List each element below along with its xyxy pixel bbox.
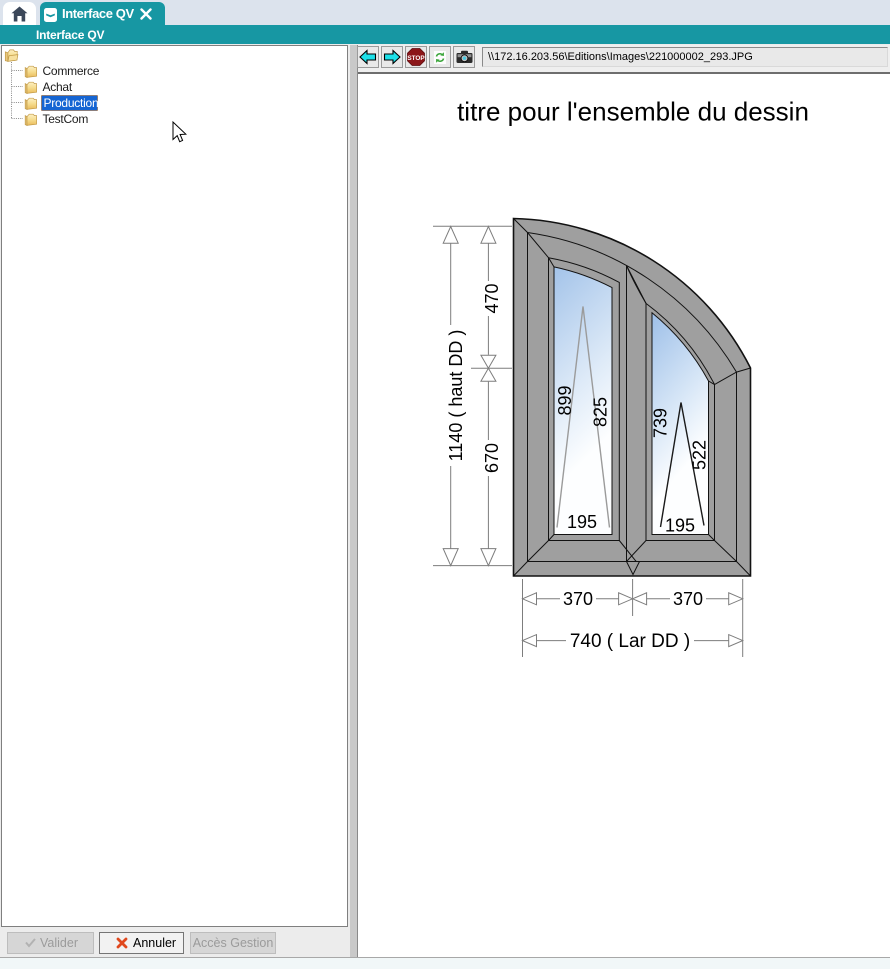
- svg-text:titre pour l'ensemble du dessi: titre pour l'ensemble du dessin: [457, 97, 809, 127]
- svg-text:Achat: Achat: [43, 80, 73, 94]
- svg-text:739: 739: [651, 408, 671, 438]
- svg-text:670: 670: [482, 443, 502, 473]
- svg-text:899: 899: [555, 385, 575, 415]
- svg-text:Commerce: Commerce: [43, 64, 100, 78]
- svg-text:370: 370: [673, 589, 703, 609]
- svg-text:195: 195: [567, 512, 597, 532]
- svg-text:470: 470: [482, 283, 502, 313]
- svg-text:Production: Production: [44, 96, 99, 110]
- svg-text:522: 522: [690, 440, 710, 470]
- svg-text:825: 825: [591, 397, 611, 427]
- svg-text:195: 195: [665, 516, 695, 536]
- svg-text:STOP: STOP: [407, 55, 425, 62]
- svg-text:TestCom: TestCom: [43, 112, 89, 126]
- svg-text:1140 ( haut DD ): 1140 ( haut DD ): [446, 330, 466, 462]
- svg-text:370: 370: [563, 589, 593, 609]
- svg-text:740 ( Lar DD ): 740 ( Lar DD ): [570, 631, 690, 652]
